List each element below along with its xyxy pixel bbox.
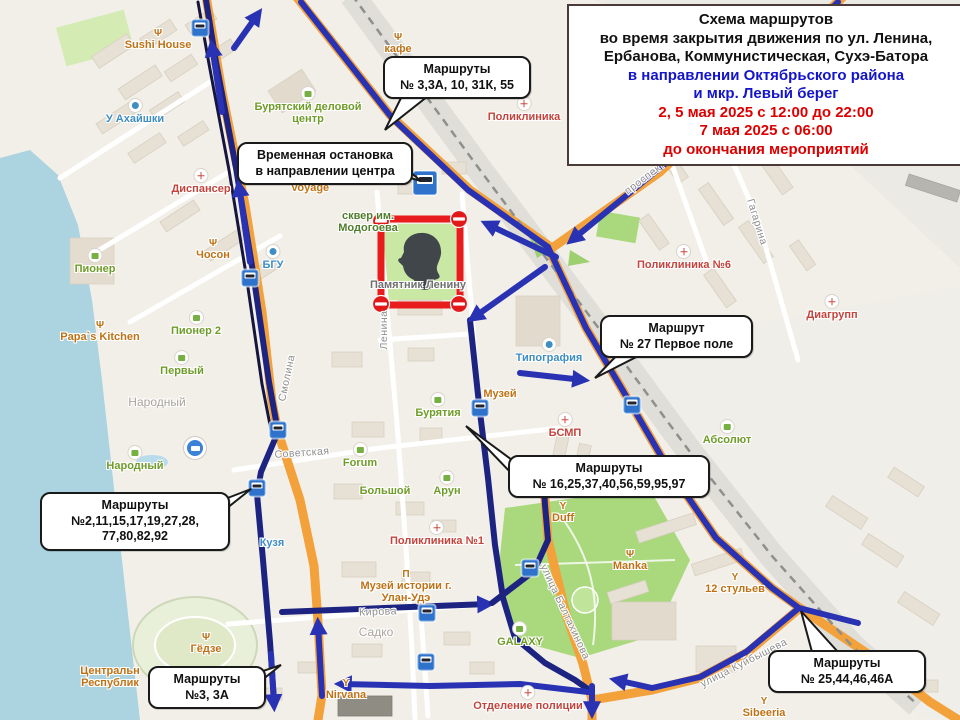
route-closure-map: ΨSushi HouseΨкафеПоликлиникаУ АхайшкиБур… <box>0 0 960 720</box>
title-line: 7 мая 2025 с 06:00 <box>573 122 959 141</box>
pond <box>136 455 168 469</box>
title-line: 2, 5 мая 2025 с 12:00 до 22:00 <box>573 104 959 123</box>
title-line: во время закрытия движения по ул. Ленина… <box>573 30 959 49</box>
title-box: Схема маршрутовво время закрытия движени… <box>567 4 960 166</box>
title-line: Ербанова, Коммунистическая, Сухэ-Батора <box>573 48 959 67</box>
title-line: и мкр. Левый берег <box>573 85 959 104</box>
title-line: в направлении Октябрьского района <box>573 67 959 86</box>
title-line: до окончания мероприятий <box>573 141 959 160</box>
title-line: Схема маршрутов <box>573 11 959 30</box>
